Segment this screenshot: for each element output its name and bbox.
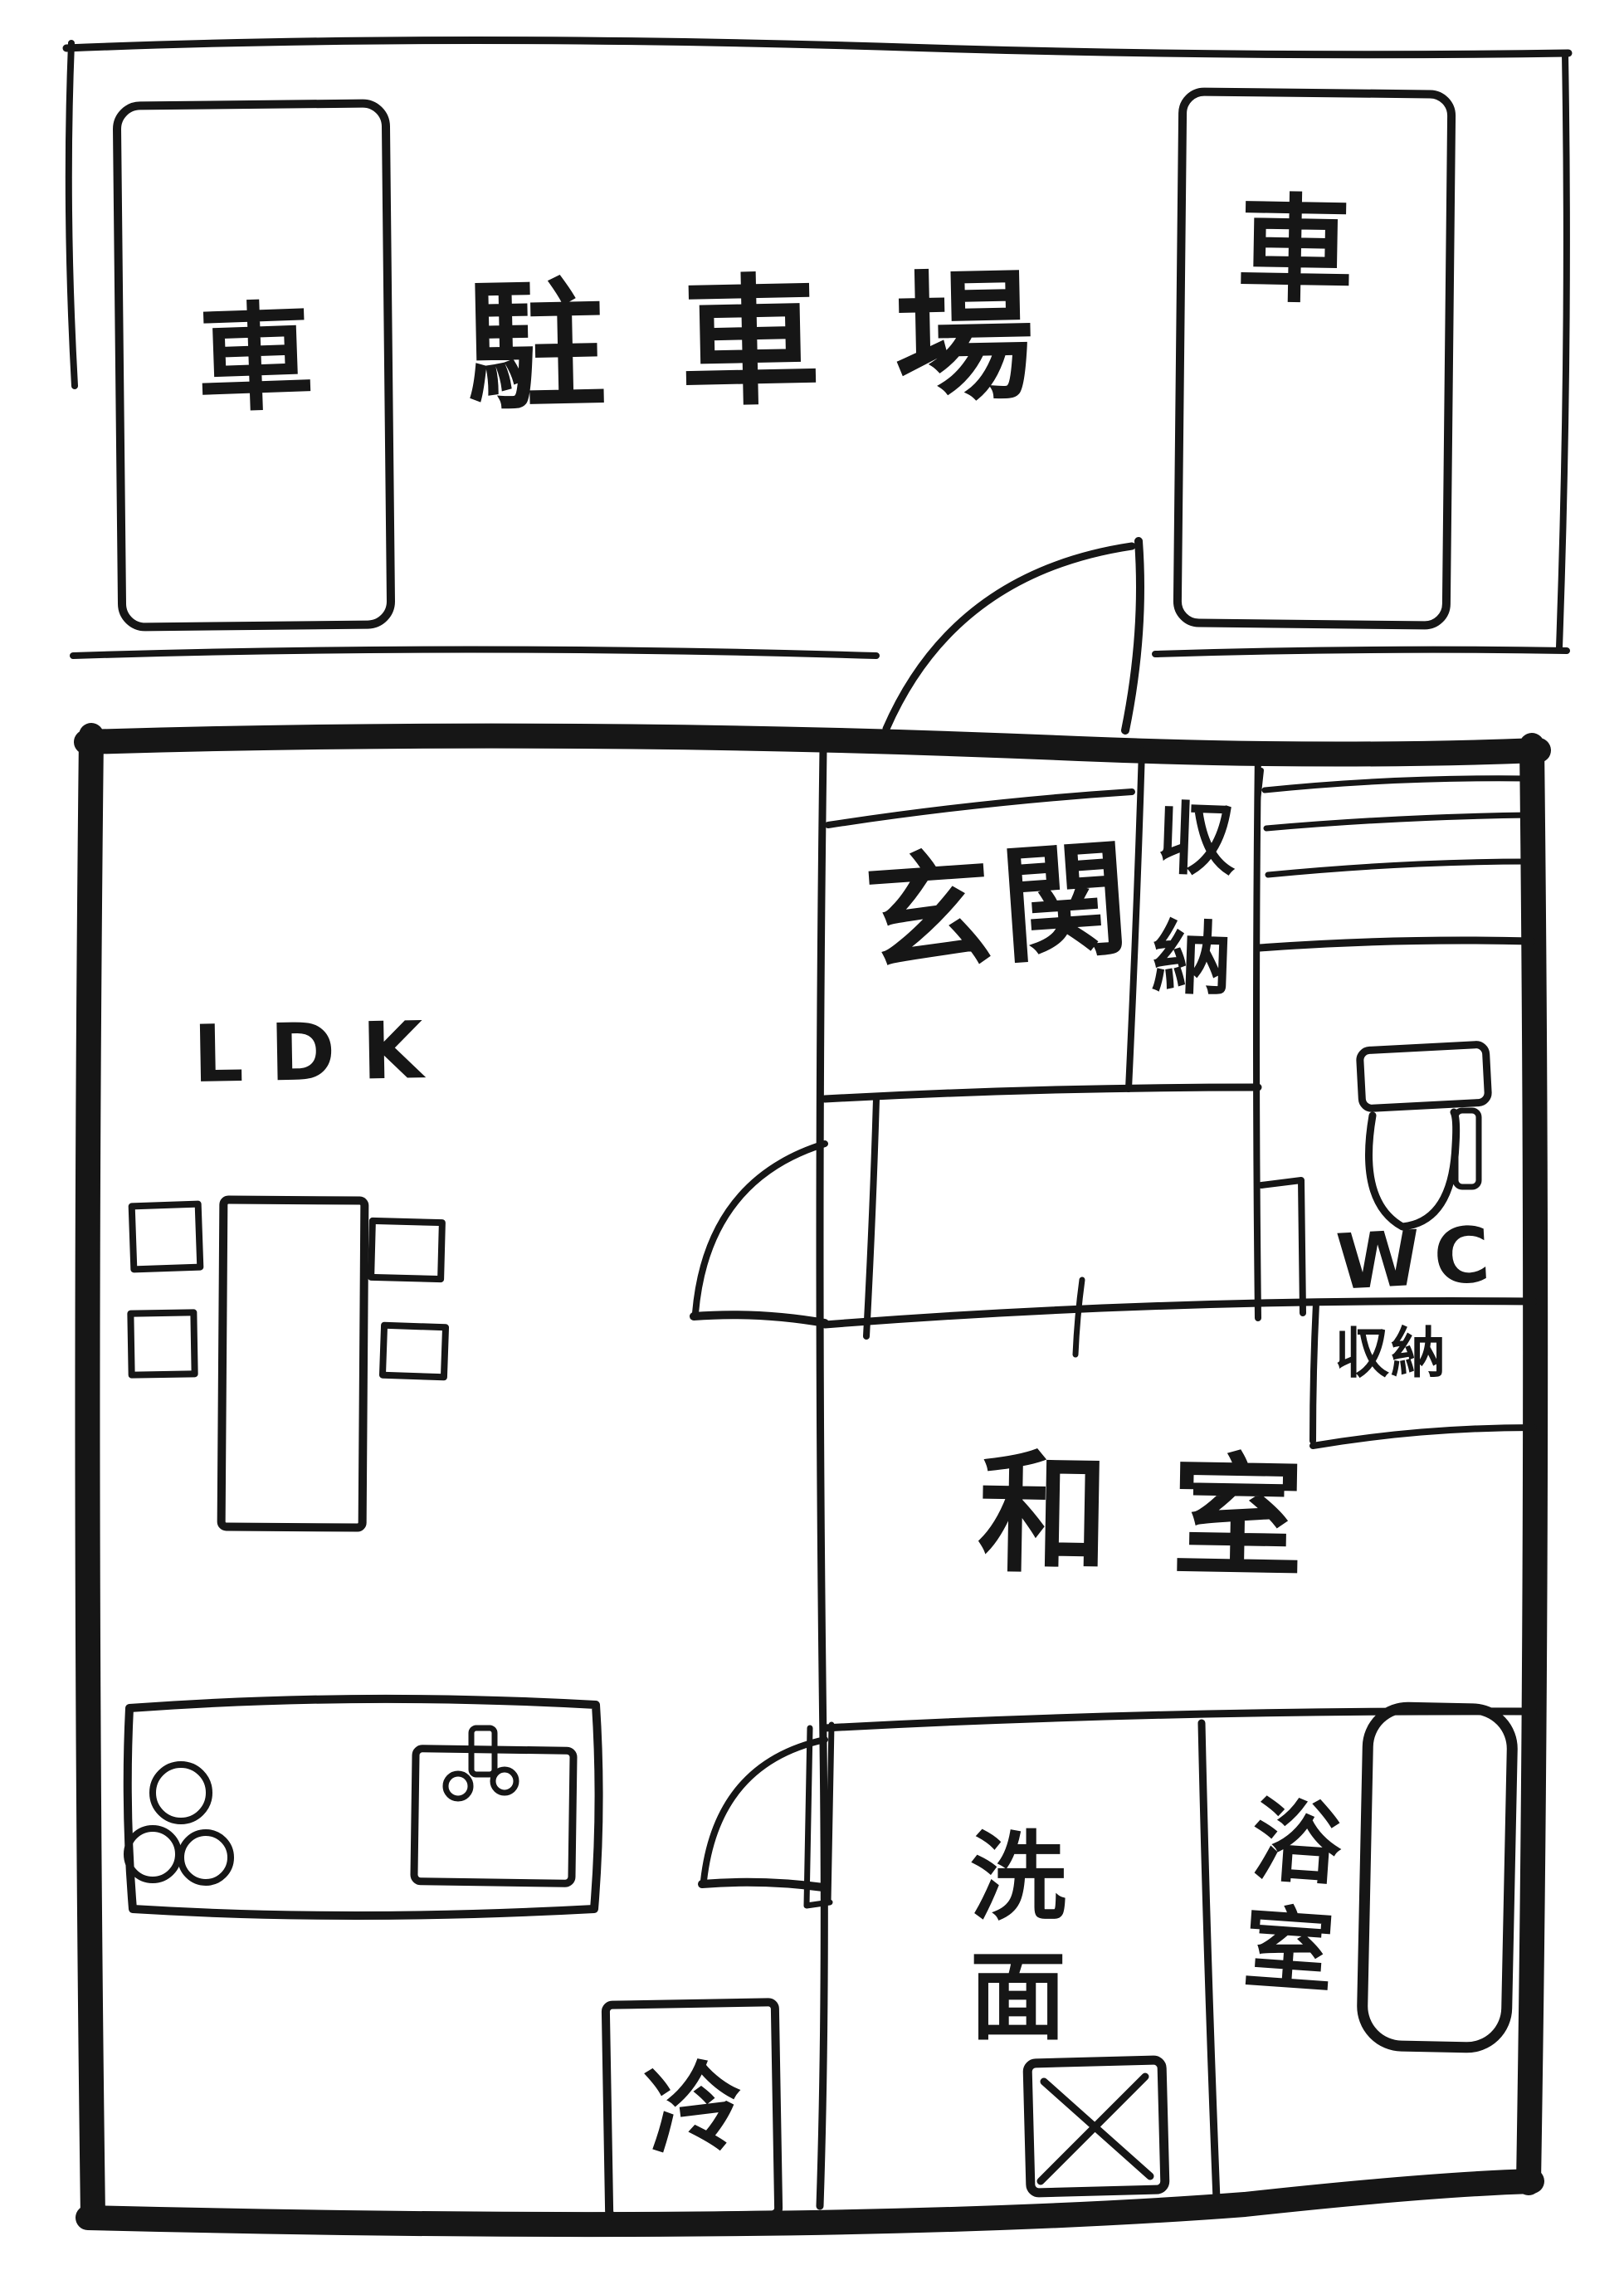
room-label-wc: WC [1334, 1214, 1505, 1303]
dining-set-icon [130, 1199, 446, 1527]
chair-top-left [132, 1204, 201, 1270]
hall-closet-left-wall [1313, 1303, 1316, 1441]
refrigerator-label: 冷 [641, 2053, 750, 2167]
entrance-door-arc [886, 546, 1132, 729]
wall-left [87, 735, 93, 2218]
hall-pocket-wall [866, 1099, 876, 1336]
hall-closet-bottom-wall [1313, 1428, 1534, 1446]
wall-tick-mark [1075, 1280, 1082, 1355]
washroom-door-jamb [807, 1725, 832, 1906]
room-label-washroom: 洗面 [958, 1826, 1060, 2065]
floor-plan-sketch: 駐車場 車 車 LDK 玄関 収納 WC 収納 和室 洗面 浴室 冷 [0, 0, 1624, 2270]
entrance-bottom-wall [825, 1087, 1258, 1099]
wall-right [1529, 745, 1535, 2183]
chair-bottom-right [383, 1325, 446, 1378]
entrance-step-line [828, 792, 1132, 825]
room-label-bathroom: 浴室 [1230, 1791, 1339, 2013]
bathtub [1362, 1706, 1514, 2048]
stair-line-3 [1268, 862, 1530, 875]
kitchen-counter-icon [127, 1699, 599, 1916]
parking-border-right [1559, 55, 1567, 647]
parking-border-bottom-left [73, 650, 876, 657]
stair-line-2 [1266, 815, 1530, 828]
stove-burner-3 [181, 1833, 231, 1882]
washroom-door-leaf [702, 1882, 823, 1887]
stove-burner-2 [127, 1828, 178, 1880]
parking-border-top [66, 40, 1568, 54]
parking-border-bottom-right [1155, 650, 1567, 654]
wc-left-wall [1256, 750, 1258, 1318]
stove-burner-1 [153, 1765, 209, 1821]
wc-door-jamb [1261, 1180, 1303, 1313]
room-label-ldk: LDK [193, 1010, 451, 1097]
chair-bottom-left [130, 1312, 194, 1374]
entrance-door-leaf [1125, 541, 1140, 730]
wall-top [86, 736, 1539, 754]
dining-table [222, 1199, 365, 1527]
parking-area-label: 駐車場 [465, 262, 1110, 422]
wall-bottom [88, 2181, 1532, 2224]
room-label-entrance-closet: 収納 [1140, 795, 1232, 1037]
washing-machine-x [1041, 2077, 1150, 2181]
room-label-japanese-room: 和室 [977, 1446, 1368, 1590]
interior-door-swings [694, 1144, 825, 1887]
toilet-icon [1359, 1044, 1488, 1227]
car-label-right: 車 [1236, 189, 1354, 313]
bathtub-icon [1362, 1706, 1514, 2048]
car-label-left: 車 [195, 296, 315, 422]
toilet-tank [1359, 1044, 1488, 1109]
parking-border-left [69, 43, 75, 386]
parking-stall-right [1178, 91, 1452, 625]
entrance-door-swing [886, 541, 1140, 730]
hall-door-leaf [694, 1315, 825, 1323]
chair-top-right [371, 1221, 442, 1279]
room-label-entrance: 玄関 [861, 832, 1142, 984]
room-label-hall-closet: 収納 [1334, 1325, 1447, 1382]
toilet-bowl [1369, 1112, 1456, 1227]
stair-line-1 [1265, 779, 1529, 790]
central-wall [820, 749, 824, 2206]
hall-door-arc [695, 1144, 825, 1313]
bathroom-divider-wall [1202, 1723, 1217, 2199]
faucet-knob-right [493, 1770, 516, 1793]
wc-top-wall [1260, 940, 1532, 948]
washroom-top-wall [825, 1711, 1534, 1728]
washing-machine-icon [1027, 2060, 1165, 2193]
faucet-knob-left [446, 1774, 471, 1799]
